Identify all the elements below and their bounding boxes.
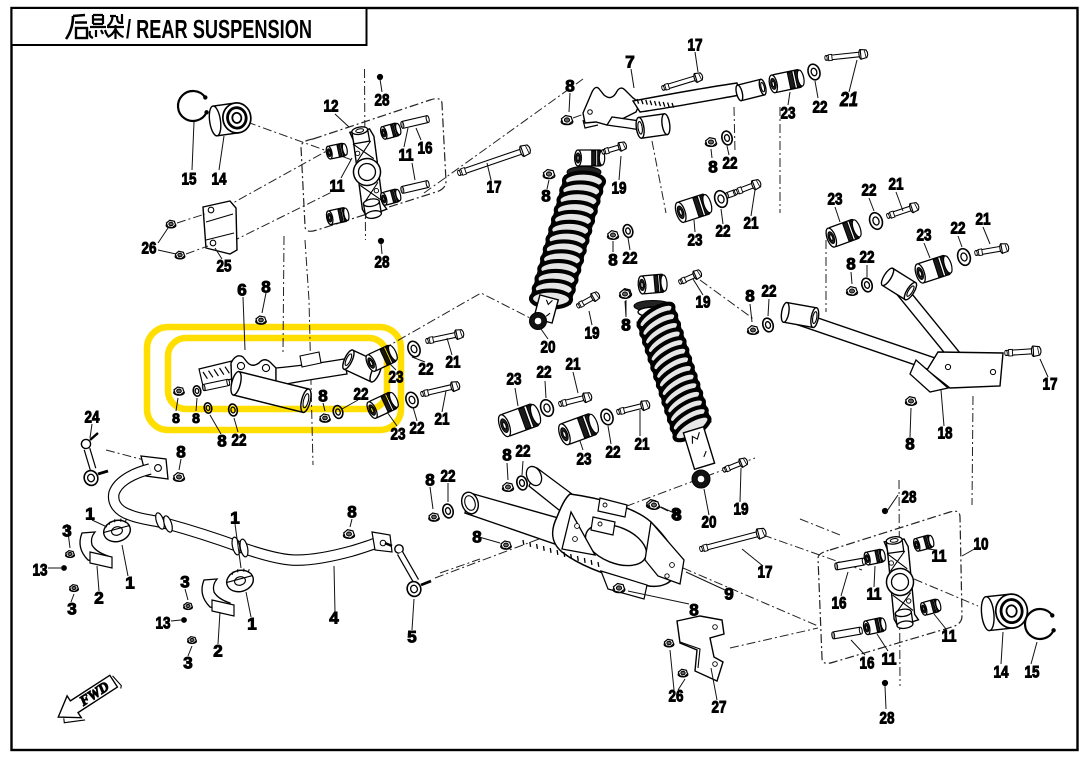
svg-text:11: 11 [942,627,957,646]
svg-text:22: 22 [419,360,434,379]
svg-text:8: 8 [347,503,356,522]
svg-text:23: 23 [917,226,932,245]
svg-text:22: 22 [606,443,621,462]
svg-text:23: 23 [828,190,843,209]
svg-text:8: 8 [565,77,574,96]
svg-text:26: 26 [669,687,684,706]
svg-text:22: 22 [623,249,638,268]
svg-text:12: 12 [324,97,339,116]
svg-text:8: 8 [176,443,185,462]
svg-text:16: 16 [832,594,847,613]
svg-text:17: 17 [758,563,773,582]
svg-text:22: 22 [723,154,738,173]
svg-text:26: 26 [142,239,157,258]
svg-text:21: 21 [435,410,450,429]
svg-text:8: 8 [192,410,200,426]
svg-text:16: 16 [860,654,875,673]
svg-text:27: 27 [712,698,727,717]
svg-text:22: 22 [862,181,877,200]
svg-text:10: 10 [974,535,989,554]
svg-text:3: 3 [180,573,189,592]
svg-text:25: 25 [217,257,232,276]
svg-text:21: 21 [889,175,904,194]
svg-text:8: 8 [261,278,270,297]
svg-text:24: 24 [85,408,100,427]
svg-text:11: 11 [867,585,882,604]
svg-text:21: 21 [839,89,858,111]
svg-text:20: 20 [702,513,717,532]
svg-text:21: 21 [976,210,991,229]
svg-text:23: 23 [688,231,703,250]
svg-text:17: 17 [688,36,703,55]
svg-text:28: 28 [902,488,917,507]
svg-text:8: 8 [541,187,550,206]
svg-text:9: 9 [724,585,733,604]
svg-text:23: 23 [781,104,796,123]
svg-text:28: 28 [880,709,895,728]
svg-text:11: 11 [399,146,414,165]
svg-text:8: 8 [318,387,327,406]
svg-text:8: 8 [502,446,511,465]
svg-text:22: 22 [516,442,531,461]
svg-text:23: 23 [577,450,592,469]
svg-text:8: 8 [708,158,717,177]
svg-text:18: 18 [938,424,953,443]
svg-text:22: 22 [716,222,731,241]
svg-text:8: 8 [217,432,226,451]
svg-text:22: 22 [762,282,777,301]
svg-text:23: 23 [507,370,522,389]
svg-text:21: 21 [744,214,759,233]
svg-text:4: 4 [329,609,339,628]
svg-text:22: 22 [354,385,369,404]
svg-text:15: 15 [1025,663,1040,682]
svg-text:8: 8 [608,251,617,270]
svg-text:28: 28 [375,253,390,272]
svg-text:1: 1 [247,615,256,634]
svg-text:15: 15 [182,170,197,189]
svg-text:22: 22 [813,98,828,117]
svg-text:8: 8 [846,255,855,274]
svg-text:11: 11 [932,547,947,566]
svg-text:21: 21 [446,353,461,372]
svg-text:3: 3 [62,522,71,541]
svg-text:/ REAR SUSPENSION: / REAR SUSPENSION [126,16,312,44]
svg-text:1: 1 [230,509,239,528]
svg-text:21: 21 [566,355,581,374]
svg-text:17: 17 [1043,375,1058,394]
svg-text:22: 22 [860,248,875,267]
svg-text:17: 17 [487,178,502,197]
svg-text:14: 14 [994,663,1009,682]
svg-text:16: 16 [418,139,433,158]
svg-text:8: 8 [172,410,180,426]
svg-text:5: 5 [407,628,416,647]
svg-text:7: 7 [625,53,634,72]
svg-text:8: 8 [621,316,630,335]
svg-text:3: 3 [183,654,192,673]
svg-text:22: 22 [410,419,425,438]
svg-text:13: 13 [33,561,48,580]
svg-text:14: 14 [212,170,227,189]
svg-text:22: 22 [537,363,552,382]
svg-text:8: 8 [472,528,481,547]
svg-text:22: 22 [232,431,247,450]
svg-text:8: 8 [671,505,680,524]
svg-text:3: 3 [67,600,76,619]
svg-text:22: 22 [441,467,456,486]
svg-text:22: 22 [951,219,966,238]
svg-text:19: 19 [734,500,749,519]
svg-text:8: 8 [425,471,434,490]
svg-text:13: 13 [156,614,171,633]
svg-text:19: 19 [696,293,711,312]
svg-text:20: 20 [541,338,556,357]
svg-text:11: 11 [882,650,897,669]
svg-text:2: 2 [213,642,222,661]
svg-text:6: 6 [237,281,246,300]
svg-text:8: 8 [905,435,914,454]
svg-text:2: 2 [94,589,103,608]
svg-text:11: 11 [330,177,345,196]
svg-text:19: 19 [612,179,627,198]
svg-text:8: 8 [745,287,754,306]
svg-text:28: 28 [375,91,390,110]
svg-text:1: 1 [125,574,134,593]
svg-text:19: 19 [585,324,600,343]
svg-text:1: 1 [85,505,94,524]
svg-text:21: 21 [635,435,650,454]
